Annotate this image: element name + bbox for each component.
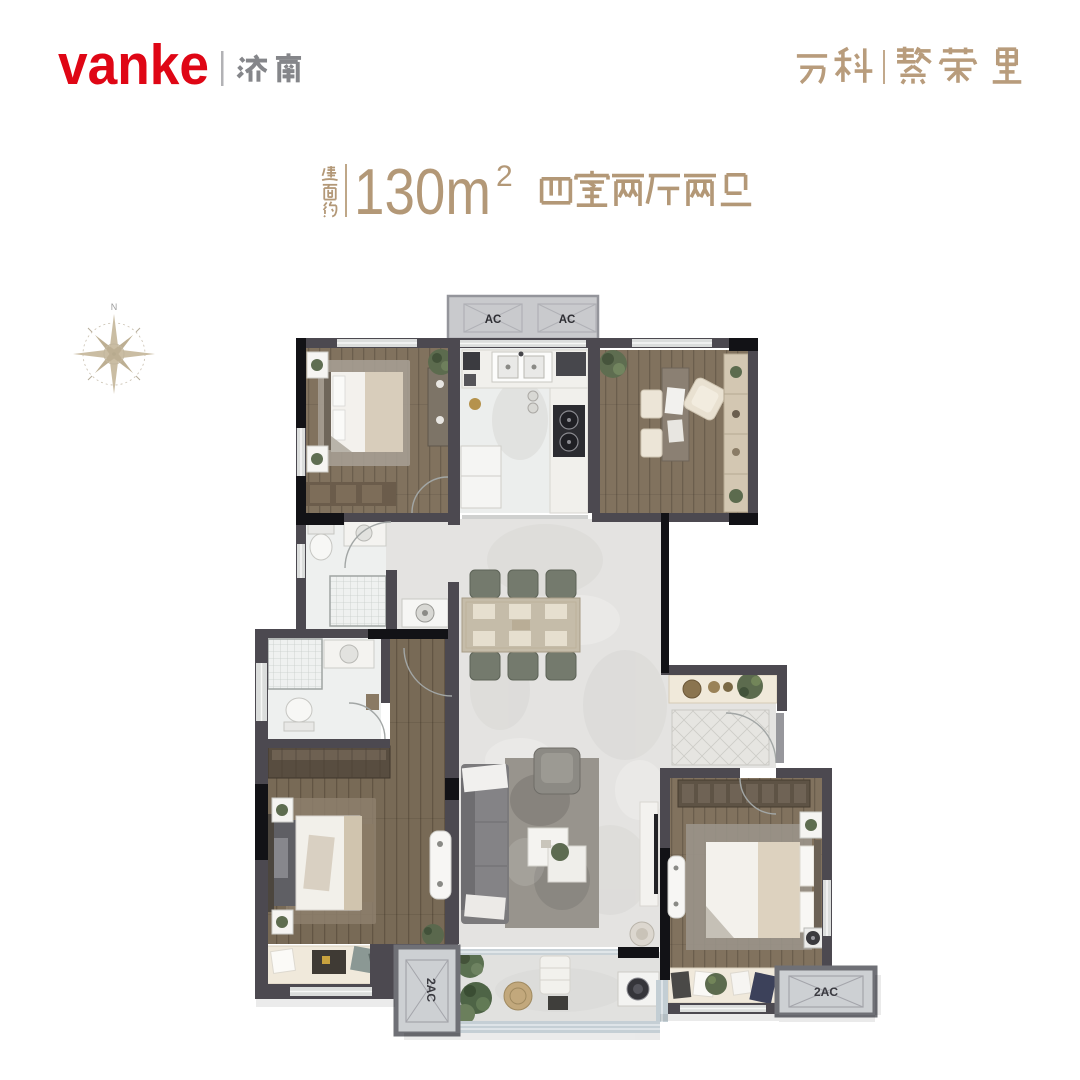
- svg-text:N: N: [111, 302, 118, 312]
- svg-text:AC: AC: [485, 314, 502, 326]
- svg-text:2AC: 2AC: [424, 978, 438, 1002]
- svg-text:2: 2: [496, 160, 513, 193]
- svg-text:vanke: vanke: [58, 33, 209, 97]
- svg-text:130m: 130m: [354, 155, 491, 228]
- svg-text:AC: AC: [559, 314, 576, 326]
- svg-text:2AC: 2AC: [814, 985, 838, 999]
